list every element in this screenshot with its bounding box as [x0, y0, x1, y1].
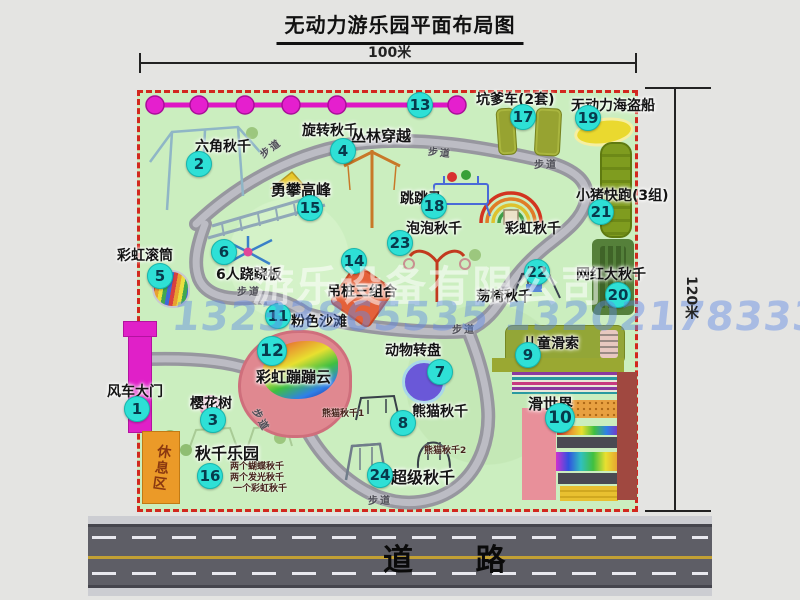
label-animal-carousel: 动物转盘	[385, 340, 441, 360]
badge-bubble-swing: 23	[387, 230, 413, 256]
badge-kids-zipline: 9	[515, 342, 541, 368]
road: 道 路	[88, 524, 712, 588]
badge-jungle-crossing: 13	[407, 92, 433, 118]
label-jungle-crossing: 丛林穿越	[351, 125, 411, 146]
label-hanging-piles: 吊桩三组合	[327, 281, 397, 301]
dimension-line-top	[140, 62, 637, 64]
badge-hanging-piles: 14	[341, 248, 367, 274]
rest-area: 休息区	[142, 431, 180, 504]
badge-chair-swing: 22	[524, 259, 550, 285]
label-rainbow-roller: 彩虹滚筒	[117, 245, 173, 265]
road-label: 道 路	[383, 535, 505, 579]
page-title: 无动力游乐园平面布局图	[277, 9, 524, 45]
label-super-swing: 超级秋千	[391, 464, 455, 488]
badge-pirate-ship: 19	[575, 105, 601, 131]
label-swing-park-3: 一个彩虹秋千	[233, 481, 287, 494]
badge-rotating-swing: 4	[330, 138, 356, 164]
trail-label: 步道	[452, 321, 476, 336]
badge-super-swing: 24	[367, 462, 393, 488]
label-rainbow-cloud: 彩虹蹦蹦云	[256, 366, 331, 387]
badge-big-swing: 20	[605, 282, 631, 308]
label-panda-swing: 熊猫秋千	[412, 401, 468, 421]
badge-cherry-tree: 3	[200, 407, 226, 433]
label-rotating-swing: 旋转秋千	[302, 120, 358, 140]
badge-jump-horse: 18	[421, 193, 447, 219]
windmill-gate-cap-icon	[123, 321, 157, 337]
dimension-tick-top-right	[635, 53, 637, 73]
trail-label: 步道	[427, 143, 452, 160]
label-rainbow-swing: 彩虹秋千	[505, 218, 561, 238]
slide-world-yellow-band-icon	[560, 486, 618, 501]
slide-world-dark-band-2-icon	[558, 473, 618, 484]
slide-world-top-bar-icon	[492, 358, 624, 372]
label-panda-swing-1: 熊猫秋千1	[322, 406, 364, 419]
badge-seesaw: 6	[211, 239, 237, 265]
label-big-swing: 网红大秋千	[576, 264, 646, 284]
badge-pit-car: 17	[510, 104, 536, 130]
pit-car-track-2-icon	[534, 107, 562, 156]
slide-world-rainbow-band-icon	[556, 452, 618, 471]
badge-peak-climb: 15	[297, 195, 323, 221]
dimension-tick-top-left	[139, 53, 141, 73]
badge-panda-swing: 8	[390, 410, 416, 436]
badge-animal-carousel: 7	[427, 359, 453, 385]
dimension-line-right	[674, 88, 676, 512]
dimension-tick-right-bottom	[645, 510, 711, 512]
label-panda-swing-2: 熊猫秋千2	[424, 443, 466, 456]
label-pink-beach: 粉色沙滩	[291, 311, 347, 331]
badge-windmill-gate: 1	[124, 396, 150, 422]
dimension-height-label: 120米	[681, 276, 701, 319]
badge-pig-run: 21	[588, 199, 614, 225]
road-shoulder-bottom	[88, 588, 712, 596]
trail-label: 步道	[534, 156, 558, 171]
label-chair-swing: 荡椅秋千	[476, 286, 532, 306]
slide-world-stripe-lanes-icon	[512, 372, 624, 394]
badge-rainbow-cloud: 12	[257, 336, 287, 366]
label-seesaw: 6人跷跷板	[216, 264, 282, 284]
badge-rainbow-roller: 5	[147, 263, 173, 289]
badge-swing-park: 16	[197, 463, 223, 489]
dimension-tick-right-top	[645, 87, 711, 89]
label-pig-run: 小猪快跑(3组)	[576, 185, 669, 205]
park-layout-plan: 无动力游乐园平面布局图 100米 120米	[0, 0, 800, 600]
trail-label: 步道	[237, 283, 261, 298]
dimension-width-label: 100米	[368, 42, 411, 62]
kids-zipline-ladder-icon	[600, 330, 618, 358]
trail-label: 步道	[368, 492, 392, 507]
label-bubble-swing: 泡泡秋千	[406, 218, 462, 238]
badge-pink-beach: 11	[265, 303, 291, 329]
slide-world-red-strip-icon	[617, 372, 637, 500]
badge-slide-world: 10	[545, 403, 575, 433]
badge-hex-swing: 2	[186, 151, 212, 177]
slide-world-dark-band-1-icon	[557, 437, 619, 448]
road-shoulder-top	[88, 516, 712, 524]
rest-area-label: 休息区	[148, 442, 174, 492]
